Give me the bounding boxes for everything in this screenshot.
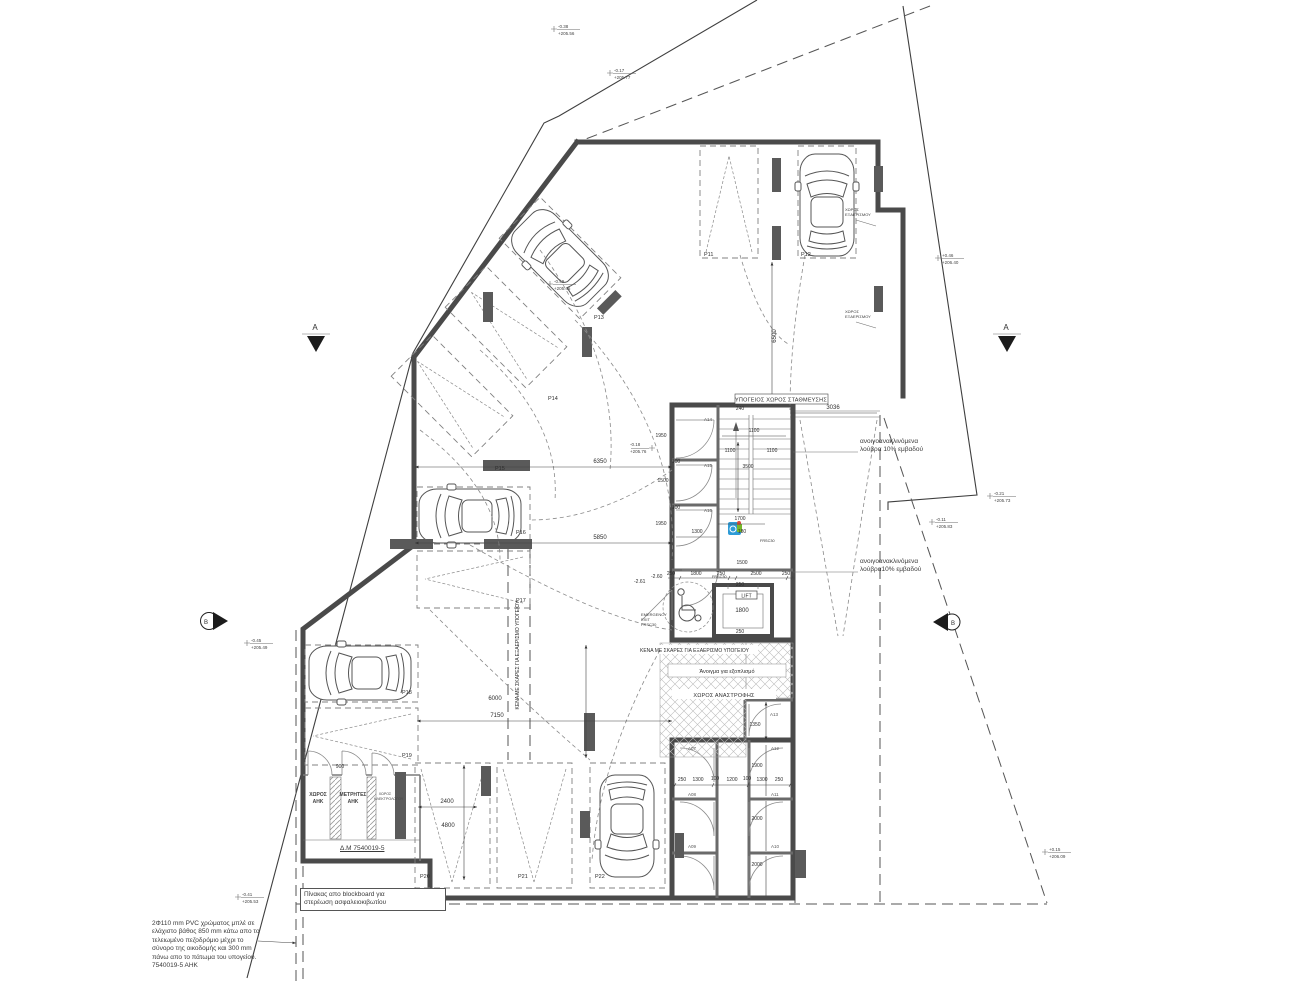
dim-7150: 7150: [490, 713, 504, 719]
section-a-left: A: [302, 323, 330, 352]
label-a11: A11: [771, 792, 779, 797]
dim-180: 180: [738, 529, 747, 535]
level-6: -0.18 +205.76: [630, 442, 655, 454]
label-p13: P13: [594, 315, 604, 321]
lvl2-el: +206.40: [942, 260, 959, 265]
level-260: -2.60: [651, 574, 663, 580]
dim-4800: 4800: [441, 823, 455, 829]
dimension-lines: [258, 220, 877, 943]
dim-1900: 1900: [751, 763, 762, 769]
label-a15: A15: [704, 463, 713, 468]
dim-1700: 1700: [734, 516, 745, 522]
pvc-duct-note: 2Φ110 mm PVC χρώματος μπλέ σε ελάχιστο β…: [152, 920, 332, 971]
chain2-1200: 1200: [726, 777, 737, 783]
lvl3-off: -0.21: [994, 491, 1005, 496]
lvl1-el: +205.77: [614, 75, 631, 80]
label-a13: A13: [770, 712, 779, 717]
label-a07: A07: [688, 746, 697, 751]
lvl5-off: -0.49: [554, 279, 565, 284]
dim-5850: 5850: [593, 535, 607, 541]
lvl4-el: +205.83: [936, 524, 953, 529]
level-4: -0.11 +205.83: [929, 517, 958, 529]
plan-drawing: 6350 5850 7150 6000 2400 4800 6500 3036 …: [0, 0, 1308, 981]
lvl6-off: -0.18: [630, 442, 641, 447]
level-0: -0.38 +205.56: [551, 24, 580, 36]
parking-title: ΥΠΟΓΕΙΟΣ ΧΩΡΟΣ ΣΤΑΘΜΕΥΣΗΣ: [735, 398, 827, 404]
turning-area-label: ΧΩΡΟΣ ΑΝΑΣΤΡΟΦΗΣ: [693, 693, 755, 699]
section-a-right-letter: A: [1003, 323, 1009, 332]
dim-250-lift-top: 250: [736, 582, 745, 588]
label-a08: A08: [688, 792, 697, 797]
dim-6350: 6350: [593, 459, 607, 465]
label-p19: P19: [402, 753, 412, 759]
dim-1300a: 1300: [691, 529, 702, 535]
dim-1100c: 1100: [767, 448, 778, 454]
louvres-note-1: ανοιγοανακλινόμενα λούβρα 10% εμβαδού: [860, 438, 960, 455]
section-b-right-letter: B: [951, 621, 955, 627]
level-3: -0.21 +205.73: [987, 491, 1016, 503]
dim-1350: 1350: [749, 722, 760, 728]
dim-1100a: 1100: [749, 428, 760, 434]
lvl7-el: +205.49: [251, 645, 268, 650]
level-9: +0.15 +206.09: [1042, 847, 1071, 859]
dim-100b: 100: [672, 505, 681, 511]
lvl9-off: +0.15: [1049, 847, 1061, 852]
dim-240: 240: [736, 406, 745, 412]
section-markers: A A B B: [201, 323, 1022, 631]
label-p11: P11: [704, 252, 713, 258]
section-b-left: B: [201, 612, 229, 630]
dim-1950a: 1950: [655, 433, 666, 439]
dim-6000: 6000: [488, 696, 502, 702]
dim-3036: 3036: [826, 405, 840, 411]
dim-3500: 3500: [742, 464, 753, 470]
vent-space-note-2: ΧΩΡΟΣ ΕΞΑΕΡΙΣΜΟΥ: [845, 310, 889, 320]
chain2-100b: 100: [743, 776, 752, 782]
car-p18: [309, 641, 411, 705]
level-8: -0.41 +205.53: [235, 892, 264, 904]
lvl5-el: +205.45: [554, 286, 571, 291]
chain2-100a: 100: [711, 776, 720, 782]
lvl6-el: +205.76: [630, 449, 647, 454]
section-a-left-letter: A: [312, 323, 318, 332]
dm-number-label: Δ.Μ 7540019-5: [340, 845, 410, 853]
lvl8-el: +205.53: [242, 899, 259, 904]
dim-1500a: 1500: [657, 478, 668, 484]
section-b-right: B: [933, 613, 960, 631]
frsc30-door1: FRSC30: [712, 575, 727, 579]
chain2-1300b: 1300: [756, 777, 767, 783]
label-p21: P21: [518, 874, 528, 880]
dim-2000a: 2000: [751, 816, 762, 822]
dim-1800-lift: 1800: [735, 608, 749, 614]
eac-meters-label: ΜΕΤΡΗΤΕΣ ΑΗΚ: [338, 792, 368, 805]
chain-1800: 1800: [690, 571, 701, 577]
label-p20: P20: [420, 874, 430, 880]
vents-label-h: ΚΕΝΑ ΜΕ ΣΚΑΡΕΣ ΓΙΑ ΕΞΑΕΡΙΣΜΟ ΥΠΟΓΕΙΟΥ: [640, 648, 750, 654]
louvres-note-2: ανοιγοανακλινόμενα λούβρα10% εμβαδού: [860, 558, 960, 575]
label-p14: P14: [548, 396, 558, 402]
dim-1100b: 1100: [725, 448, 736, 454]
vents-label-v: ΚΕΝΑ ΜΕ ΣΚΑΡΕΣ ΓΙΑ ΕΞΑΕΡΙΣΜΟ ΥΠΟΓΕΙΟΥ: [515, 600, 521, 710]
level-261: -2.61: [634, 579, 646, 585]
lvl9-el: +206.09: [1049, 854, 1066, 859]
label-p18: P18: [402, 690, 412, 696]
level-2: +0.46 +206.40: [935, 253, 964, 265]
level-7: -0.45 +205.49: [244, 638, 273, 650]
dim-250-lift-bot: 250: [736, 629, 745, 635]
dim-6500: 6500: [772, 329, 778, 343]
label-p16: P16: [516, 530, 526, 536]
car-p22: [595, 775, 659, 877]
chain2-250b: 250: [775, 777, 784, 783]
frsc30-door2: FRSC30: [760, 539, 775, 543]
dim-2000b: 2000: [751, 862, 762, 868]
lvl8-off: -0.41: [242, 892, 253, 897]
electrician-room-label: ΧΩΡΟΣ ΗΛΕΚΤΡΟΛΟΓΟΥ: [374, 792, 396, 801]
lvl4-off: -0.11: [936, 517, 946, 522]
label-p22: P22: [595, 874, 605, 880]
dim-100a: 100: [672, 459, 681, 465]
lvl0-el: +205.56: [558, 31, 575, 36]
dim-1500b: 1500: [736, 560, 747, 566]
label-a14: A14: [704, 417, 713, 422]
eac-room-label: ΧΩΡΟΣ ΑΗΚ: [304, 792, 332, 805]
label-p15: P15: [495, 466, 505, 472]
lift-label: LIFT: [741, 594, 751, 600]
label-a09: A09: [688, 844, 697, 849]
section-a-right: A: [993, 323, 1021, 352]
chain2-250a: 250: [678, 777, 687, 783]
car-p16: [419, 484, 521, 548]
floor-plan-sheet: 6350 5850 7150 6000 2400 4800 6500 3036 …: [0, 0, 1308, 981]
label-p12: P12: [801, 252, 811, 258]
chain2-1300a: 1300: [692, 777, 703, 783]
chain-250c: 250: [782, 571, 791, 577]
label-a10: A10: [771, 844, 780, 849]
lvl0-off: -0.38: [558, 24, 569, 29]
section-b-left-letter: B: [204, 620, 208, 626]
emergency-exit-note: EMERGENCY EXIT FRSC30: [641, 612, 681, 627]
dim-1950b: 1950: [655, 521, 666, 527]
car-p12: [795, 154, 859, 256]
stall-p21: [497, 763, 572, 888]
lvl2-off: +0.46: [942, 253, 954, 258]
chain-2500: 2500: [750, 571, 761, 577]
cars: [309, 154, 859, 877]
dim-900: 900: [336, 764, 345, 770]
stair-up-arrow: [733, 422, 739, 431]
blockboard-note: Πίνακας απο blockboard για στερέωση ασφα…: [300, 888, 446, 911]
lvl7-off: -0.45: [251, 638, 262, 643]
label-a16: A16: [704, 508, 713, 513]
label-a12: A12: [771, 746, 780, 751]
lvl3-el: +205.73: [994, 498, 1011, 503]
stall-p15: [391, 335, 513, 457]
chain-250a: 250: [667, 571, 676, 577]
lvl1-off: -0.17: [614, 68, 625, 73]
dim-2400: 2400: [440, 799, 454, 805]
equipment-opening-label: Άνοιγμα για εξοπλισμό: [699, 668, 754, 675]
vent-space-note-1: ΧΩΡΟΣ ΕΞΑΕΡΙΣΜΟΥ: [845, 208, 889, 218]
